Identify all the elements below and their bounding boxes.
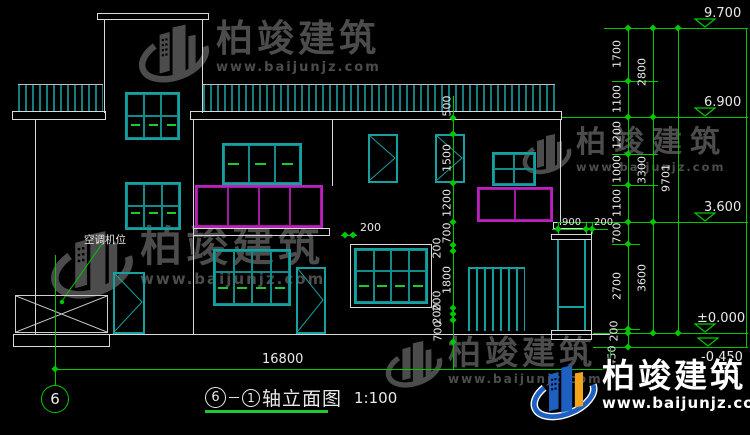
balcony-slab-mid <box>193 228 330 236</box>
title-text: 轴立面图 <box>262 384 342 411</box>
wall-recess <box>332 120 333 186</box>
baijun-logo-icon <box>385 336 443 390</box>
axis-bubble-6: 6 <box>41 385 69 413</box>
level-marker-icon <box>697 337 719 347</box>
dim-label-overhang: 200 <box>360 221 381 234</box>
watermark-color-logo: 柏竣建筑 www.baijunjz.com <box>530 358 750 424</box>
entry-door-left <box>113 272 145 334</box>
dim-label: 3600 <box>636 264 649 292</box>
title-axis-start: 6 <box>205 387 226 408</box>
balcony-window-right <box>492 152 536 186</box>
dim-label: 1700 <box>611 40 624 68</box>
level-label: 3.600 <box>704 200 741 215</box>
dim-label-total-height: 9701 <box>660 164 673 192</box>
wall-right-lower <box>591 229 592 334</box>
tower-window <box>125 92 180 140</box>
porch-column-shaft <box>557 240 586 330</box>
dim-label: 200 <box>431 238 444 259</box>
tower-cap <box>97 13 209 20</box>
dim-label: 1500 <box>441 144 454 172</box>
roof-slab-left <box>12 111 106 120</box>
watermark-brand: 柏竣建筑 <box>216 20 381 57</box>
roof-railing-left <box>18 84 103 111</box>
wall-right-upper <box>560 120 561 225</box>
watermark-url: www.baijunjz.com <box>602 394 750 412</box>
porch-column-base <box>551 330 592 340</box>
dim-label-porch: 900 <box>562 217 581 228</box>
roof-slab-right <box>190 111 562 120</box>
level-label: 6.900 <box>704 95 741 110</box>
dim-label: 2700 <box>611 272 624 300</box>
stair-louver-fence <box>468 267 525 331</box>
dim-label: 1200 <box>441 189 454 217</box>
watermark-url: www.baijunjz.com <box>216 61 381 74</box>
elevation-drawing-canvas: 柏竣建筑 www.baijunjz.com 柏竣建筑 www.baijunjz.… <box>0 0 750 435</box>
balcony-rail-right <box>477 187 553 222</box>
dim-label: 1200 <box>611 121 624 149</box>
gf-window-2 <box>354 248 428 304</box>
axis-bubble-label: 6 <box>50 390 60 408</box>
title-underline <box>205 410 328 413</box>
gf-window-1 <box>213 249 291 306</box>
dim-label: 1100 <box>611 189 624 217</box>
ac-platform <box>15 295 108 333</box>
gf-door-mid <box>296 267 326 334</box>
level-label: ±0.000 <box>697 311 745 326</box>
dim-label: 1000 <box>611 155 624 183</box>
dim-label: 1100 <box>611 85 624 113</box>
level-label: 9.700 <box>704 6 741 21</box>
wall-mid <box>193 120 194 334</box>
drawing-title: 6 － 1 轴立面图 1:100 <box>205 384 397 411</box>
casement-window-a <box>368 134 398 183</box>
dim-label: 2800 <box>636 58 649 86</box>
title-axis-separator: － <box>227 388 241 408</box>
dim-label: 3300 <box>636 156 649 184</box>
watermark-url: www.baijunjz.com <box>576 162 728 174</box>
dim-label: 700 <box>432 321 445 342</box>
title-axis-end: 1 <box>242 389 260 407</box>
stair-window <box>125 182 181 230</box>
dim-label: 500 <box>441 96 454 117</box>
watermark-brand: 柏竣建筑 <box>602 358 750 394</box>
dim-label: 200 <box>608 321 621 342</box>
roof-railing-right <box>203 84 555 111</box>
dim-label-porch: 200 <box>594 217 613 228</box>
title-scale: 1:100 <box>354 389 397 407</box>
baijun-logo-icon <box>530 358 598 424</box>
balcony-rail-mid <box>195 185 323 228</box>
plinth-left <box>13 334 110 347</box>
dim-label-total-width: 16800 <box>262 352 303 367</box>
